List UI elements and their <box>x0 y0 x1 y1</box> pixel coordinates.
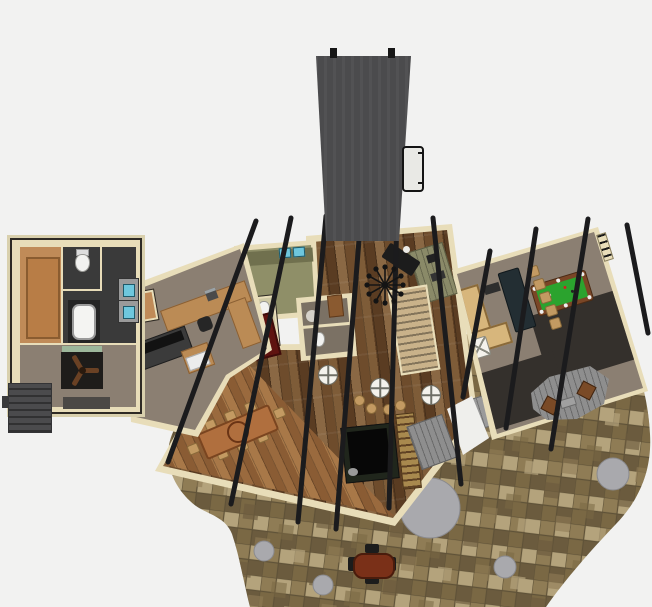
roof-tab <box>388 48 395 58</box>
roof-tab <box>330 48 337 58</box>
dryer <box>118 300 139 323</box>
closet-room <box>18 245 63 345</box>
picnic-table <box>353 553 395 579</box>
round-table <box>421 385 441 405</box>
stair-notch <box>2 396 9 408</box>
bar-stool <box>354 395 365 406</box>
stepping-stone <box>254 541 274 561</box>
door-swing <box>306 310 318 322</box>
stepping-stone <box>597 458 629 490</box>
skylight-hinge <box>418 182 422 184</box>
bath-laundry-room <box>61 245 138 345</box>
bar-chair <box>527 265 541 279</box>
kitchenette <box>483 282 501 295</box>
skylight-hinge <box>418 152 422 154</box>
bathtub-icon <box>72 304 96 340</box>
tub-surround <box>68 300 100 344</box>
dryer-door <box>123 306 135 319</box>
round-table <box>370 378 390 398</box>
bath-wall <box>63 289 101 291</box>
exterior-stairs <box>8 383 52 433</box>
floorplan-canvas <box>0 0 652 607</box>
closet-rug <box>26 257 60 339</box>
bar-stool <box>395 400 406 411</box>
round-table <box>318 365 338 385</box>
lazy-susan-ring <box>227 421 249 443</box>
bar-stool <box>366 403 377 414</box>
pool-pocket <box>539 309 544 314</box>
bath-wall <box>100 247 102 291</box>
pool-pocket <box>587 295 592 300</box>
bath-cabinet <box>327 294 344 317</box>
fan-opening <box>61 352 103 389</box>
skylight <box>402 146 424 192</box>
stepping-stone <box>313 575 333 595</box>
toilet-icon <box>75 254 90 272</box>
stepping-stone <box>494 556 516 578</box>
bar-stool <box>383 404 394 415</box>
toilet-icon <box>313 332 325 347</box>
picnic-chair <box>365 544 379 553</box>
hot-tub-step <box>348 468 358 476</box>
pool-pocket <box>563 303 568 308</box>
washer <box>118 278 139 301</box>
piano-stool <box>403 246 410 253</box>
sputnik-chandelier <box>363 263 407 307</box>
kitchen-sink <box>293 247 306 258</box>
washer-door <box>123 284 135 297</box>
pool-pocket <box>580 272 585 277</box>
bedroom-rug <box>63 397 110 409</box>
kitchen-sink <box>279 248 292 259</box>
